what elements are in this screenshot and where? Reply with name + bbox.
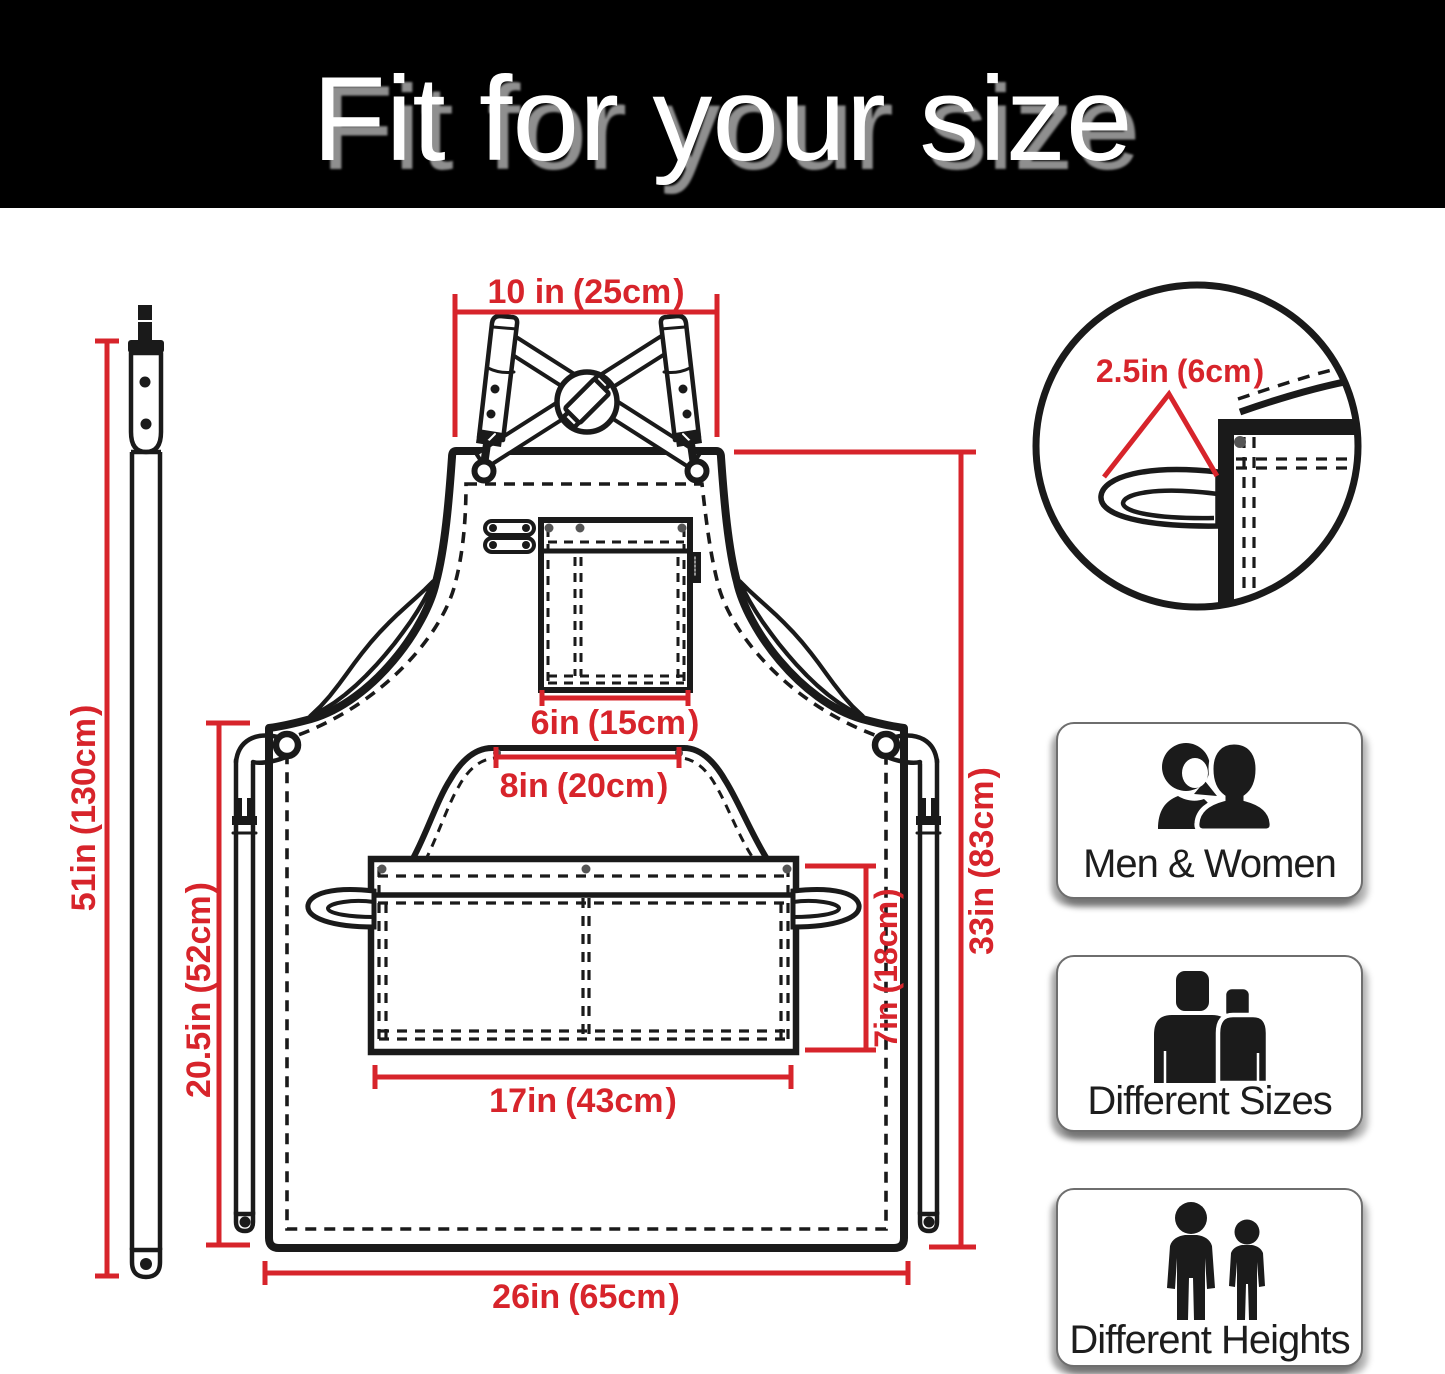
svg-text:26in(65cm): 26in(65cm) (492, 1278, 680, 1316)
svg-text:8in(20cm): 8in(20cm) (500, 767, 669, 805)
svg-text:17in(43cm): 17in(43cm) (489, 1082, 677, 1120)
svg-text:7in(18cm): 7in(18cm) (868, 888, 904, 1047)
svg-text:51in(130cm): 51in(130cm) (65, 705, 103, 912)
svg-text:6in(15cm): 6in(15cm) (531, 704, 700, 742)
svg-text:2.5in(6cm): 2.5in(6cm) (1096, 353, 1264, 389)
svg-text:10 in(25cm): 10 in(25cm) (487, 273, 684, 311)
svg-text:20.5in(52cm): 20.5in(52cm) (180, 882, 218, 1098)
svg-text:33in(83cm): 33in(83cm) (963, 767, 1001, 955)
